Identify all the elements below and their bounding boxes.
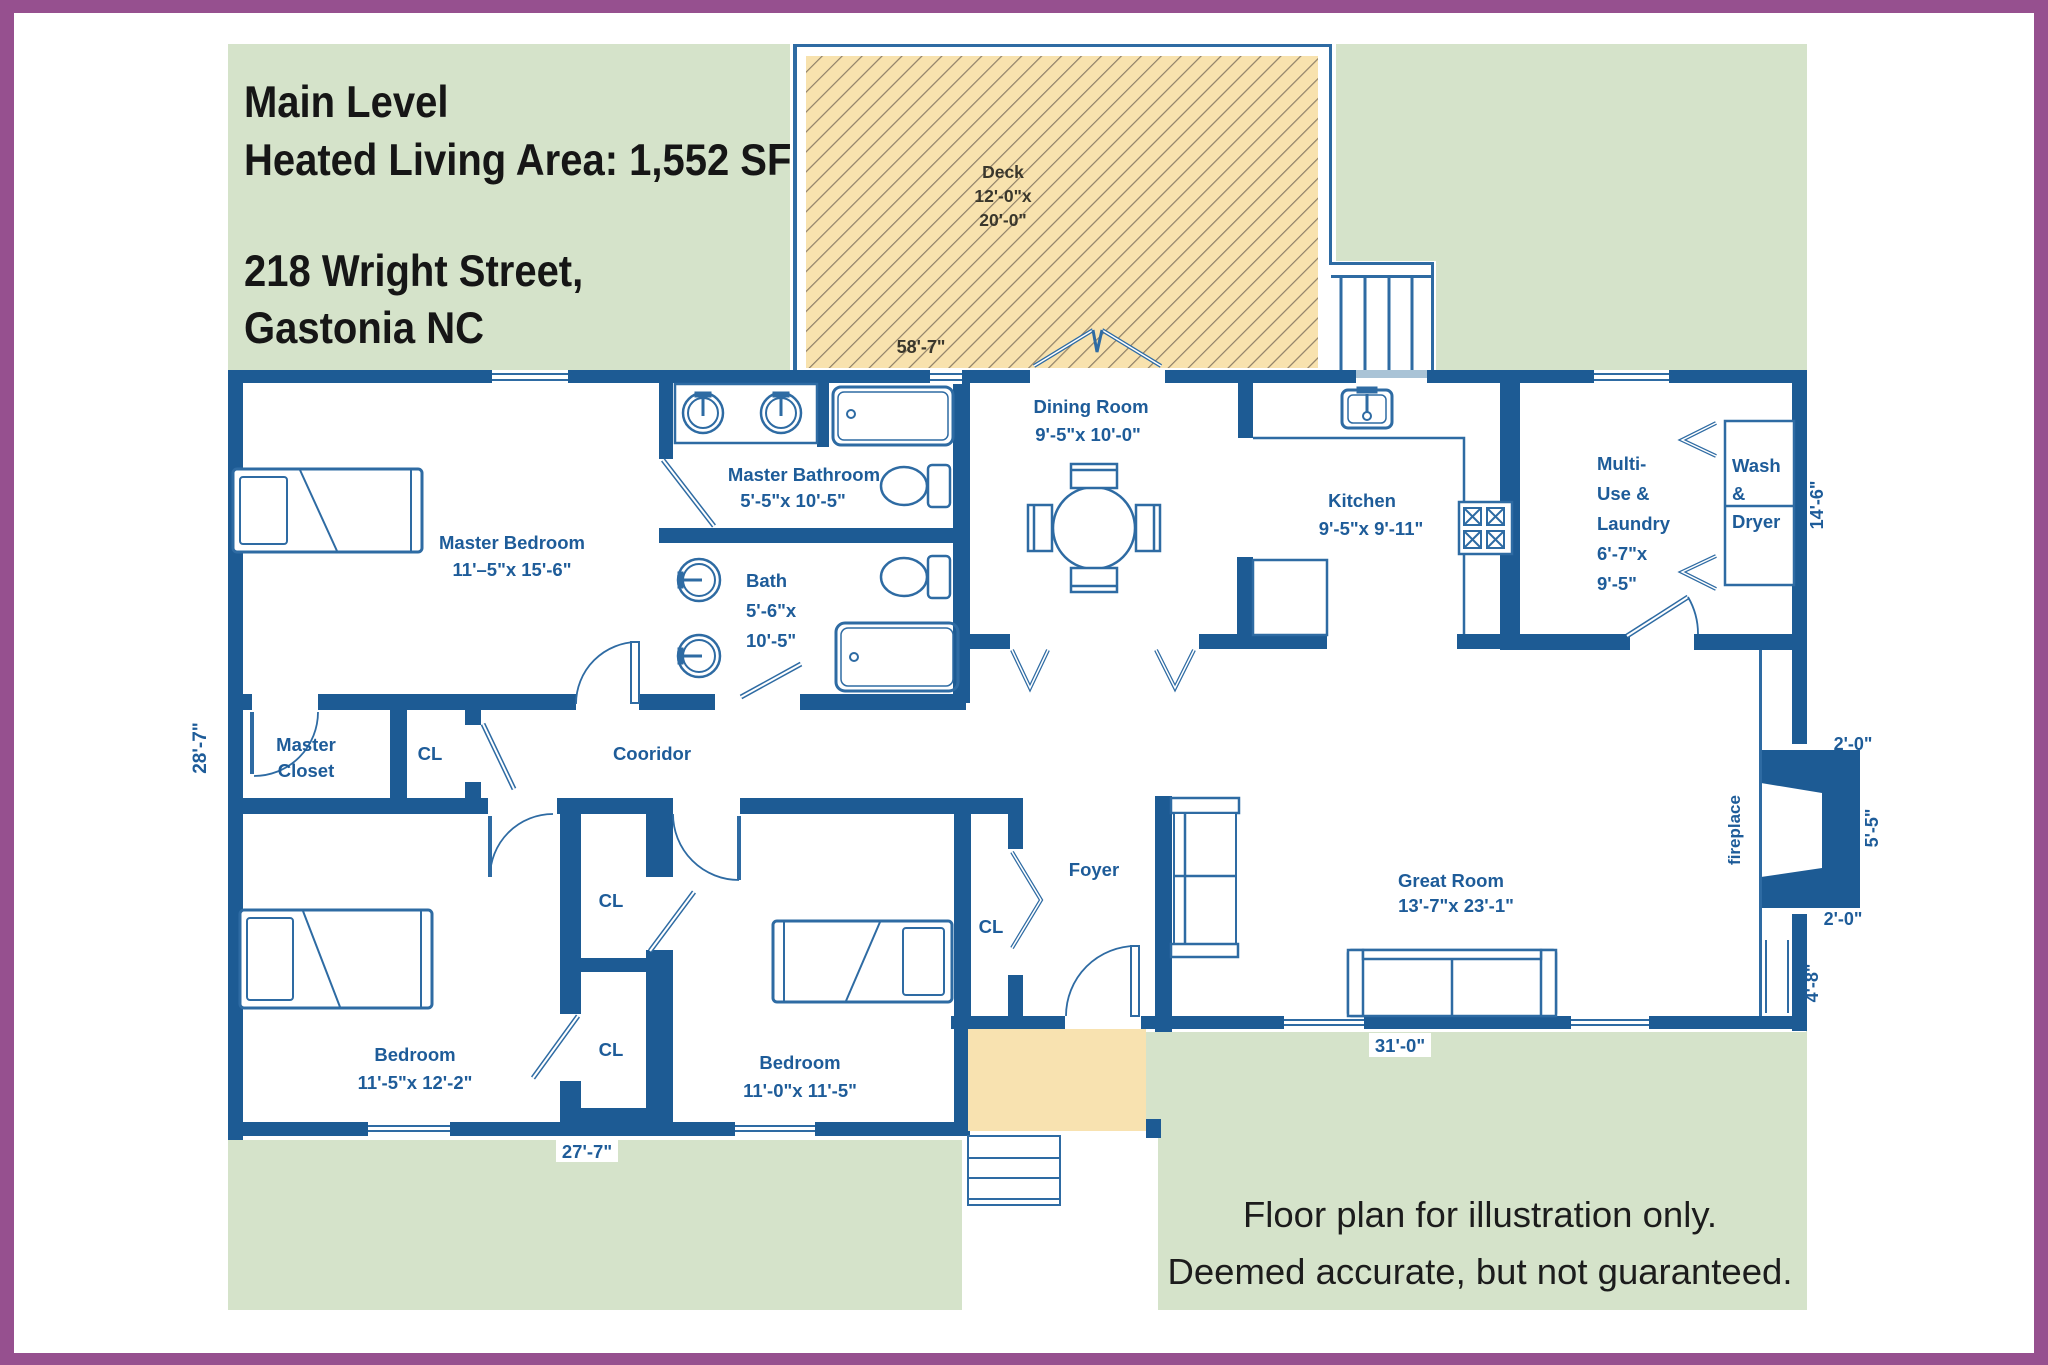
svg-text:Dryer: Dryer [1732, 511, 1780, 532]
svg-text:2'-0": 2'-0" [1824, 909, 1863, 929]
svg-text:9'-5": 9'-5" [1597, 573, 1637, 594]
svg-text:10'-5": 10'-5" [746, 630, 796, 651]
svg-text:28'-7": 28'-7" [190, 722, 211, 774]
svg-text:9'-5"x 9'-11": 9'-5"x 9'-11" [1319, 518, 1424, 539]
svg-text:Deck: Deck [982, 162, 1024, 182]
svg-text:Main Level: Main Level [244, 77, 448, 127]
svg-text:Heated Living Area: 1,552 SF: Heated Living Area: 1,552 SF [244, 135, 791, 185]
svg-text:CL: CL [599, 1039, 624, 1060]
svg-text:5'-6"x: 5'-6"x [746, 600, 797, 621]
svg-text:12'-0"x: 12'-0"x [974, 186, 1031, 206]
svg-text:5'-5": 5'-5" [1862, 809, 1882, 848]
svg-text:11'-5"x 12'-2": 11'-5"x 12'-2" [358, 1072, 473, 1093]
svg-text:Wash: Wash [1732, 455, 1781, 476]
svg-text:Foyer: Foyer [1069, 859, 1119, 880]
svg-text:4'-8": 4'-8" [1802, 964, 1822, 1003]
svg-text:&: & [1732, 483, 1745, 504]
svg-text:Master Bathroom: Master Bathroom [728, 464, 880, 485]
svg-text:Dining Room: Dining Room [1033, 396, 1148, 417]
svg-text:9'-5"x 10'-0": 9'-5"x 10'-0" [1035, 424, 1141, 445]
svg-text:14'-6": 14'-6" [1807, 481, 1827, 530]
svg-text:13'-7"x 23'-1": 13'-7"x 23'-1" [1398, 895, 1514, 916]
svg-text:Use &: Use & [1597, 483, 1649, 504]
svg-text:Floor plan for illustration on: Floor plan for illustration only. [1243, 1194, 1717, 1235]
svg-text:CL: CL [599, 890, 624, 911]
svg-text:Kitchen: Kitchen [1328, 490, 1396, 511]
svg-text:58'-7": 58'-7" [897, 337, 946, 357]
svg-text:Multi-: Multi- [1597, 453, 1646, 474]
svg-text:20'-0": 20'-0" [979, 210, 1026, 230]
svg-text:fireplace: fireplace [1725, 795, 1744, 865]
svg-text:CL: CL [418, 743, 443, 764]
svg-text:6'-7"x: 6'-7"x [1597, 543, 1648, 564]
svg-text:5'-5"x 10'-5": 5'-5"x 10'-5" [740, 490, 846, 511]
svg-text:Great Room: Great Room [1398, 870, 1504, 891]
svg-text:11'-0"x 11'-5": 11'-0"x 11'-5" [743, 1080, 857, 1101]
svg-text:Deemed accurate, but not guara: Deemed accurate, but not guaranteed. [1168, 1251, 1793, 1292]
svg-text:Cooridor: Cooridor [613, 743, 691, 764]
svg-text:27'-7": 27'-7" [562, 1141, 612, 1162]
svg-text:Master Bedroom: Master Bedroom [439, 532, 585, 553]
svg-text:11'–5"x 15'-6": 11'–5"x 15'-6" [453, 559, 572, 580]
svg-text:Laundry: Laundry [1597, 513, 1671, 534]
svg-text:Bedroom: Bedroom [759, 1052, 840, 1073]
svg-text:2'-0": 2'-0" [1834, 734, 1873, 754]
svg-text:Bedroom: Bedroom [374, 1044, 455, 1065]
svg-text:Master: Master [276, 734, 336, 755]
svg-text:Gastonia NC: Gastonia NC [244, 303, 484, 353]
svg-text:CL: CL [979, 916, 1004, 937]
svg-text:Closet: Closet [278, 760, 335, 781]
svg-text:31'-0": 31'-0" [1375, 1035, 1425, 1056]
svg-text:Bath: Bath [746, 570, 787, 591]
svg-text:218 Wright Street,: 218 Wright Street, [244, 246, 583, 296]
